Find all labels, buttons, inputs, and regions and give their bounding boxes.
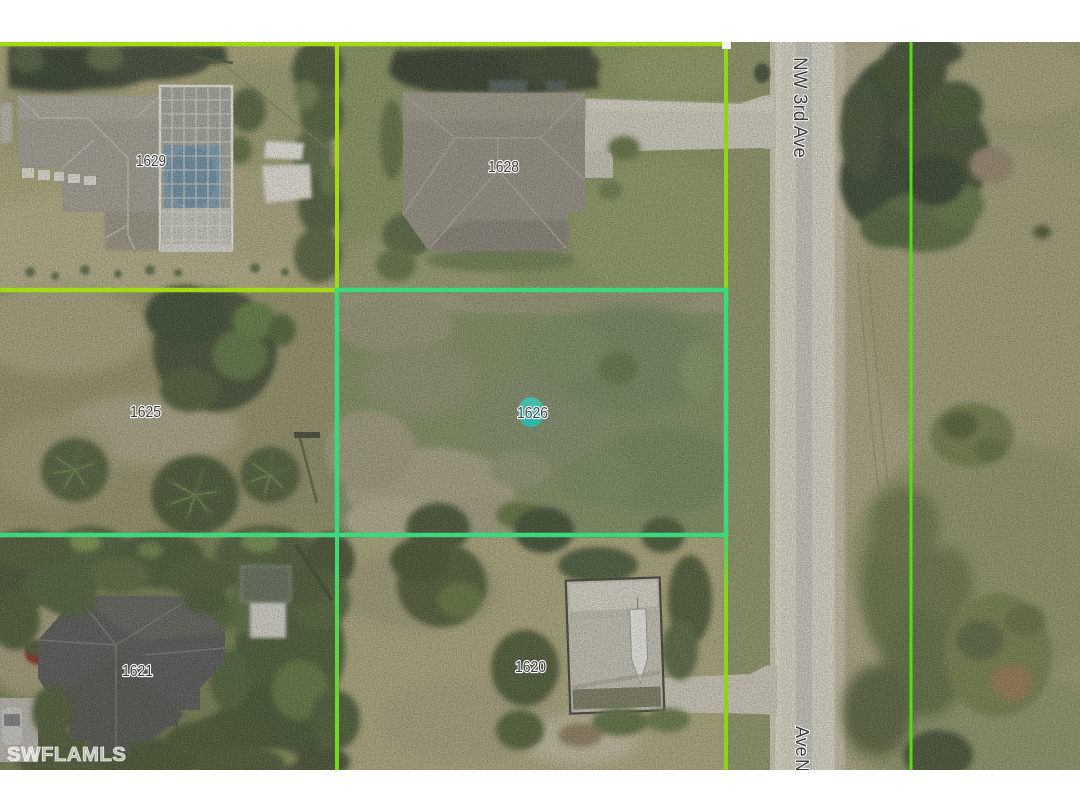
svg-text:1625: 1625 <box>130 404 161 421</box>
svg-text:1620: 1620 <box>515 659 546 676</box>
svg-text:Ave: Ave <box>792 726 812 757</box>
svg-text:1621: 1621 <box>122 663 153 680</box>
svg-text:NW 3rd Ave: NW 3rd Ave <box>789 57 810 158</box>
svg-text:SWFLAMLS: SWFLAMLS <box>7 743 126 766</box>
svg-text:1626: 1626 <box>517 405 548 422</box>
svg-text:1628: 1628 <box>488 159 519 176</box>
svg-text:1629: 1629 <box>136 153 166 170</box>
